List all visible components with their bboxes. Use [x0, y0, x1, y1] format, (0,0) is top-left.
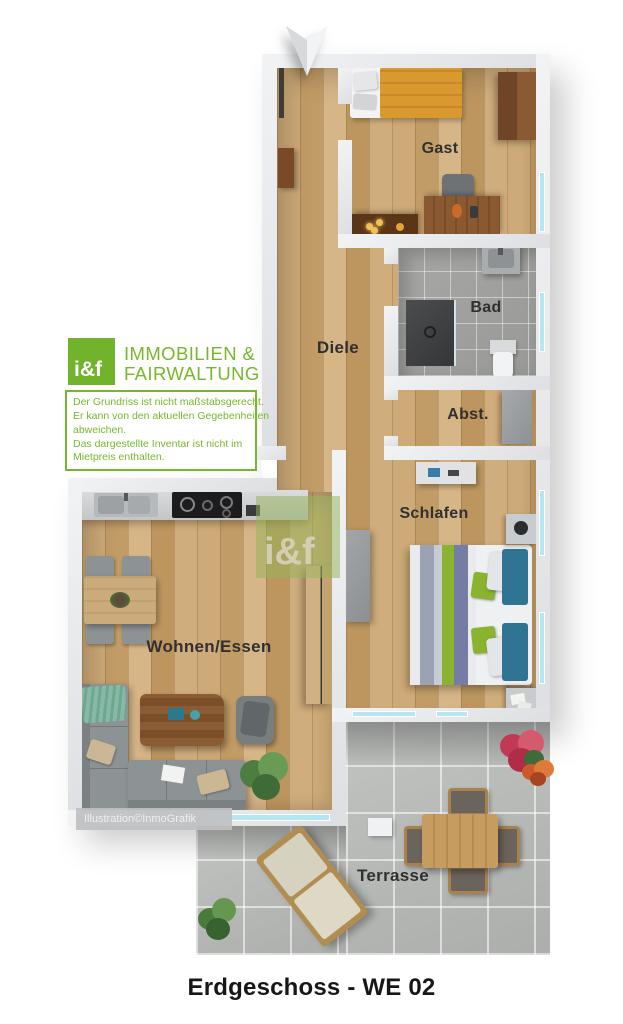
- flower-pot-orange: [522, 760, 556, 790]
- blue-pillow: [502, 623, 528, 681]
- guest-bed: [350, 68, 462, 118]
- coffee-table-item: [168, 708, 184, 720]
- bedroom-dresser: [416, 462, 476, 484]
- armchair-throw: [240, 700, 270, 737]
- wall-bath-bottom: [384, 376, 550, 390]
- hallway-cabinet: [278, 148, 294, 188]
- watermark-logo-text: i&f: [264, 531, 315, 574]
- north-arrow-icon: [284, 24, 330, 78]
- burner: [222, 509, 231, 518]
- illustration-credit: Illustration©InmoGrafik: [76, 808, 232, 830]
- window-bedroom-bottom: [436, 711, 468, 717]
- disclaimer-line: Mietpreis enthalten.: [73, 451, 249, 465]
- shower: [406, 300, 456, 366]
- armchair: [236, 696, 274, 744]
- window-guest-room: [539, 172, 545, 232]
- disclaimer-line: Der Grundriss ist nicht maßstabsgerecht.: [73, 396, 249, 410]
- wall-storage-left-b: [384, 436, 398, 446]
- dining-chair: [86, 556, 114, 578]
- disclaimer-box: Der Grundriss ist nicht maßstabsgerecht.…: [65, 390, 257, 471]
- guest-bed-duvet: [380, 68, 462, 118]
- nightstand: [506, 514, 536, 544]
- door-step: [368, 818, 392, 836]
- guest-desk: [424, 196, 500, 234]
- sofa-blanket: [81, 685, 127, 724]
- faucet: [124, 493, 128, 501]
- room-label-terrasse: Terrasse: [357, 866, 429, 886]
- terrace-chair: [448, 866, 488, 894]
- terrace-chair: [448, 788, 488, 816]
- disclaimer-line: Das dargestellte Inventar ist nicht im: [73, 438, 249, 452]
- magazine: [161, 764, 185, 783]
- room-label-diele: Diele: [317, 338, 359, 358]
- coffee-table: [140, 694, 224, 746]
- window-bedroom-2: [539, 612, 545, 684]
- cooktop: [172, 492, 242, 518]
- bathroom-sink: [482, 244, 520, 274]
- window-bedroom-1: [539, 490, 545, 556]
- burner: [202, 500, 213, 511]
- candle: [376, 219, 383, 226]
- window-bathroom: [539, 292, 545, 352]
- terrace-plant-green: [198, 898, 238, 944]
- wall-guest-divider-a: [338, 68, 352, 104]
- room-label-schlafen: Schlafen: [399, 505, 468, 523]
- shower-drain: [424, 326, 436, 338]
- wall-storage-left-a: [384, 390, 398, 400]
- dining-table: [84, 576, 156, 624]
- wall-bath-left-b: [384, 306, 398, 376]
- disclaimer-line: abweichen.: [73, 424, 249, 438]
- guest-bed-pillow: [352, 71, 378, 91]
- room-label-gast: Gast: [422, 140, 459, 158]
- double-bed: [410, 545, 532, 685]
- table-centerpiece: [110, 592, 130, 608]
- cup: [190, 710, 200, 720]
- dining-chair: [86, 622, 114, 644]
- wall-bedroom-top: [384, 446, 550, 460]
- dresser-item: [428, 468, 440, 477]
- wall-bath-left-a: [384, 248, 398, 264]
- room-label-bad: Bad: [470, 299, 501, 317]
- guest-wardrobe: [498, 72, 536, 140]
- tall-shelf: [306, 566, 332, 704]
- bedside-lamp: [514, 521, 528, 535]
- candle: [371, 227, 378, 234]
- floor-plan-page: Gast Bad Diele Abst. Schlafen Wohnen/Ess…: [0, 0, 623, 1024]
- desk-lamp: [452, 204, 462, 218]
- sink-basin: [98, 496, 124, 514]
- disclaimer-line: Er kann von den aktuellen Gegebenheiten: [73, 410, 249, 424]
- terrace-door-bedroom: [352, 711, 416, 717]
- storage-cabinet: [502, 390, 532, 444]
- guest-bed-pillow: [352, 93, 377, 111]
- room-label-abst: Abst.: [447, 406, 489, 424]
- candle: [396, 223, 404, 231]
- burner: [220, 496, 233, 509]
- wall-hall-left: [262, 54, 277, 446]
- bed-duvet: [410, 545, 476, 685]
- kitchen-sink-unit: [94, 493, 158, 517]
- room-label-wohnen-essen: Wohnen/Essen: [146, 637, 271, 657]
- blue-pillow: [502, 549, 528, 605]
- wall-living-left: [68, 478, 82, 826]
- company-name-line2: FAIRWALTUNG: [124, 363, 260, 385]
- company-logo-text: i&f: [74, 358, 102, 382]
- dresser-item: [448, 470, 459, 476]
- plan-title: Erdgeschoss - WE 02: [188, 974, 436, 1002]
- watermark-logo-box: i&f: [256, 496, 340, 578]
- wall-living-top: [68, 478, 277, 492]
- company-name-line1: IMMOBILIEN &: [124, 343, 255, 365]
- company-logo-icon: i&f: [68, 338, 115, 385]
- dining-chair: [122, 556, 150, 578]
- bedroom-wardrobe: [344, 530, 370, 622]
- burner: [180, 497, 195, 512]
- wall-guest-bottom: [338, 234, 550, 248]
- terrace-table: [422, 814, 498, 868]
- wall-guest-divider-b: [338, 140, 352, 236]
- sink-drainer: [128, 496, 150, 514]
- desk-accessory: [470, 206, 478, 218]
- houseplant: [240, 752, 290, 802]
